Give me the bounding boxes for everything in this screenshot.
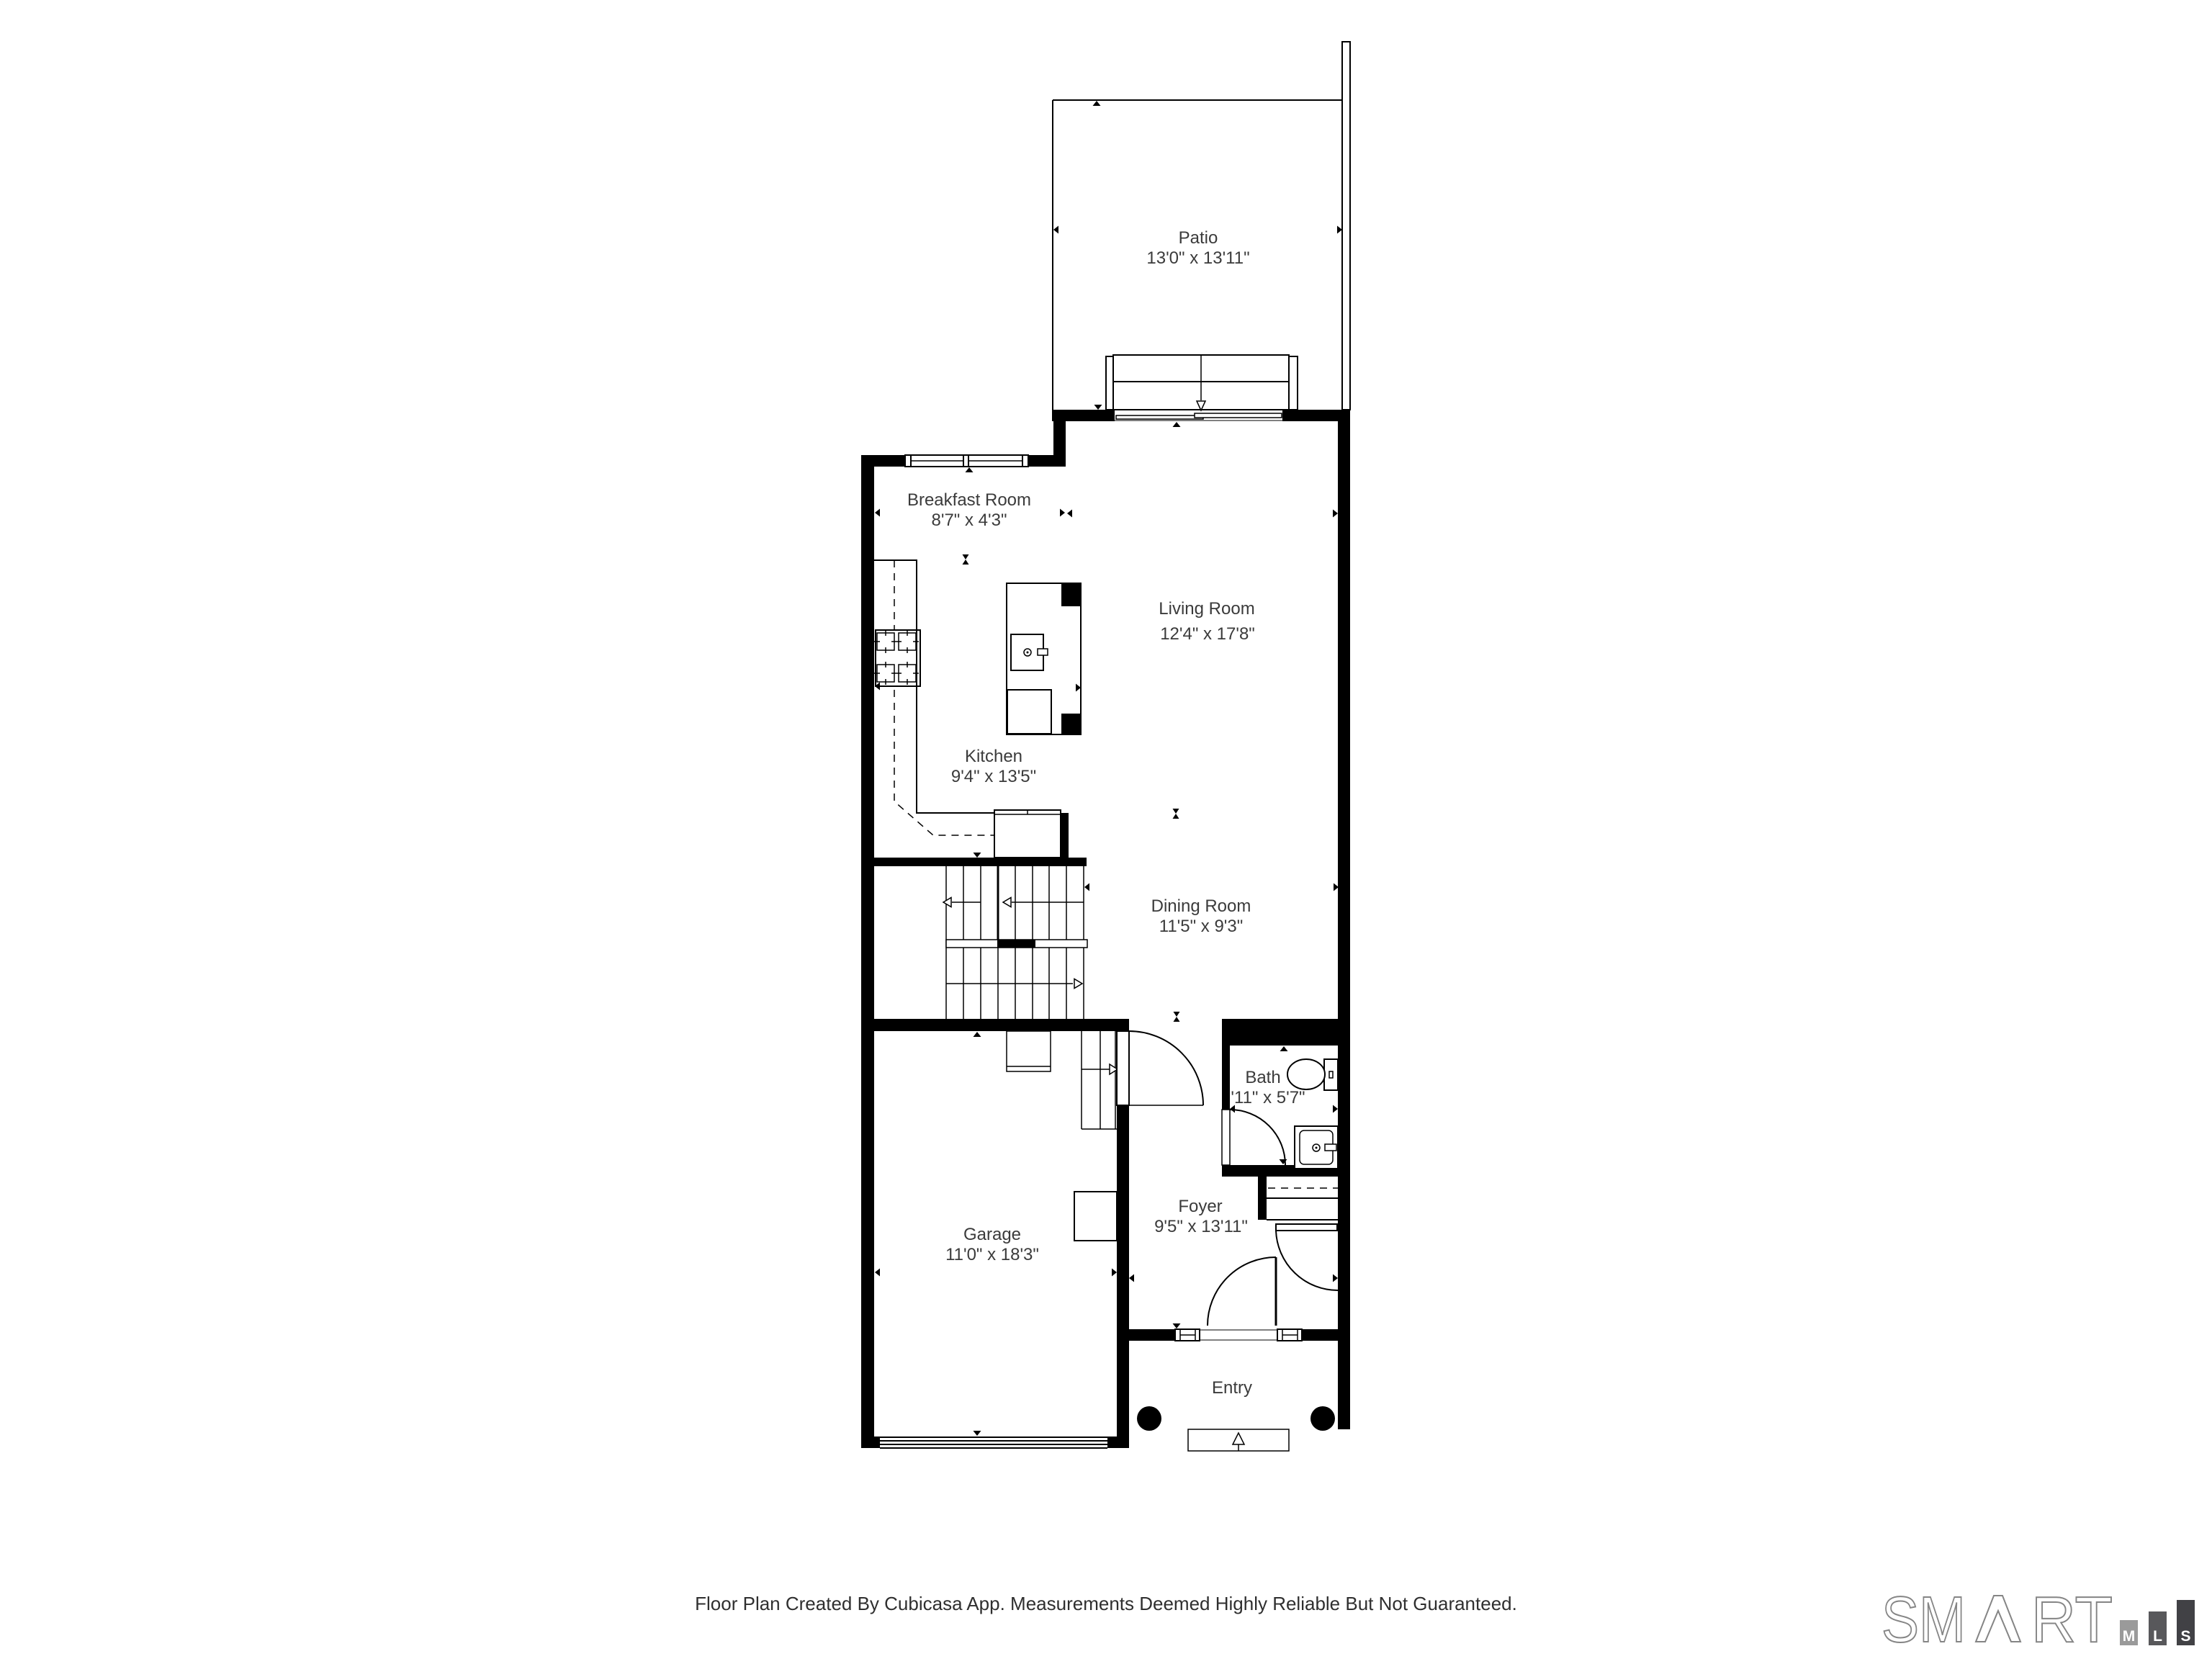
svg-text:Breakfast Room: Breakfast Room [907, 490, 1031, 510]
svg-text:RT: RT [2031, 1584, 2113, 1656]
svg-text:Garage: Garage [963, 1225, 1021, 1244]
svg-text:11'0" x 18'3": 11'0" x 18'3" [945, 1245, 1039, 1264]
svg-text:8'7" x 4'3": 8'7" x 4'3" [932, 511, 1007, 530]
svg-text:Entry: Entry [1212, 1378, 1252, 1398]
svg-text:M: M [2123, 1628, 2136, 1645]
svg-text:'11" x 5'7": '11" x 5'7" [1231, 1088, 1305, 1107]
svg-text:L: L [2153, 1628, 2162, 1645]
svg-text:S: S [2180, 1628, 2190, 1645]
svg-text:Foyer: Foyer [1178, 1197, 1222, 1216]
svg-text:Dining Room: Dining Room [1151, 896, 1251, 916]
svg-text:Living Room: Living Room [1159, 599, 1254, 619]
svg-text:Kitchen: Kitchen [965, 747, 1022, 766]
svg-text:11'5" x 9'3": 11'5" x 9'3" [1159, 917, 1244, 936]
svg-text:9'5" x 13'11": 9'5" x 13'11" [1154, 1217, 1248, 1236]
svg-text:9'4" x 13'5": 9'4" x 13'5" [951, 767, 1036, 786]
svg-text:Patio: Patio [1179, 228, 1218, 248]
svg-text:Bath: Bath [1245, 1068, 1280, 1087]
svg-text:Floor Plan Created By Cubicasa: Floor Plan Created By Cubicasa App. Meas… [695, 1593, 1517, 1614]
svg-text:13'0" x 13'11": 13'0" x 13'11" [1146, 248, 1249, 268]
svg-text:12'4" x 17'8": 12'4" x 17'8" [1160, 624, 1255, 644]
svg-text:SM: SM [1881, 1584, 1966, 1656]
